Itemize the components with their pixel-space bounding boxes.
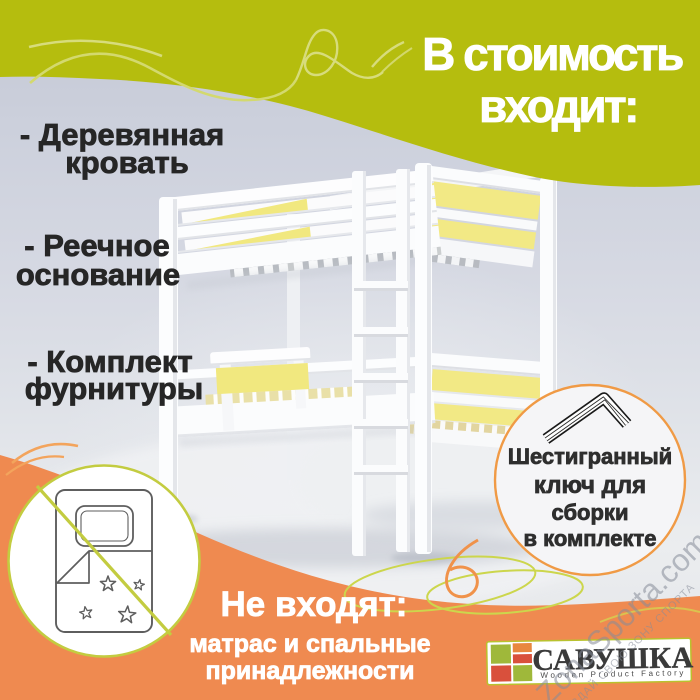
svg-text:кровать: кровать (65, 145, 189, 180)
svg-text:основание: основание (16, 257, 180, 292)
svg-text:в комплекте: в комплекте (523, 526, 656, 551)
svg-text:принадлежности: принадлежности (205, 657, 414, 685)
svg-text:фурнитуры: фурнитуры (25, 371, 203, 406)
svg-text:Шестигранный: Шестигранный (508, 444, 672, 469)
svg-text:входит:: входит: (479, 80, 637, 132)
svg-text:В стоимость: В стоимость (422, 28, 683, 80)
svg-text:ключ для: ключ для (534, 472, 646, 499)
svg-text:матрас и спальные: матрас и спальные (189, 630, 430, 658)
svg-text:Не входят:: Не входят: (221, 585, 408, 624)
svg-text:сборки: сборки (552, 500, 629, 525)
